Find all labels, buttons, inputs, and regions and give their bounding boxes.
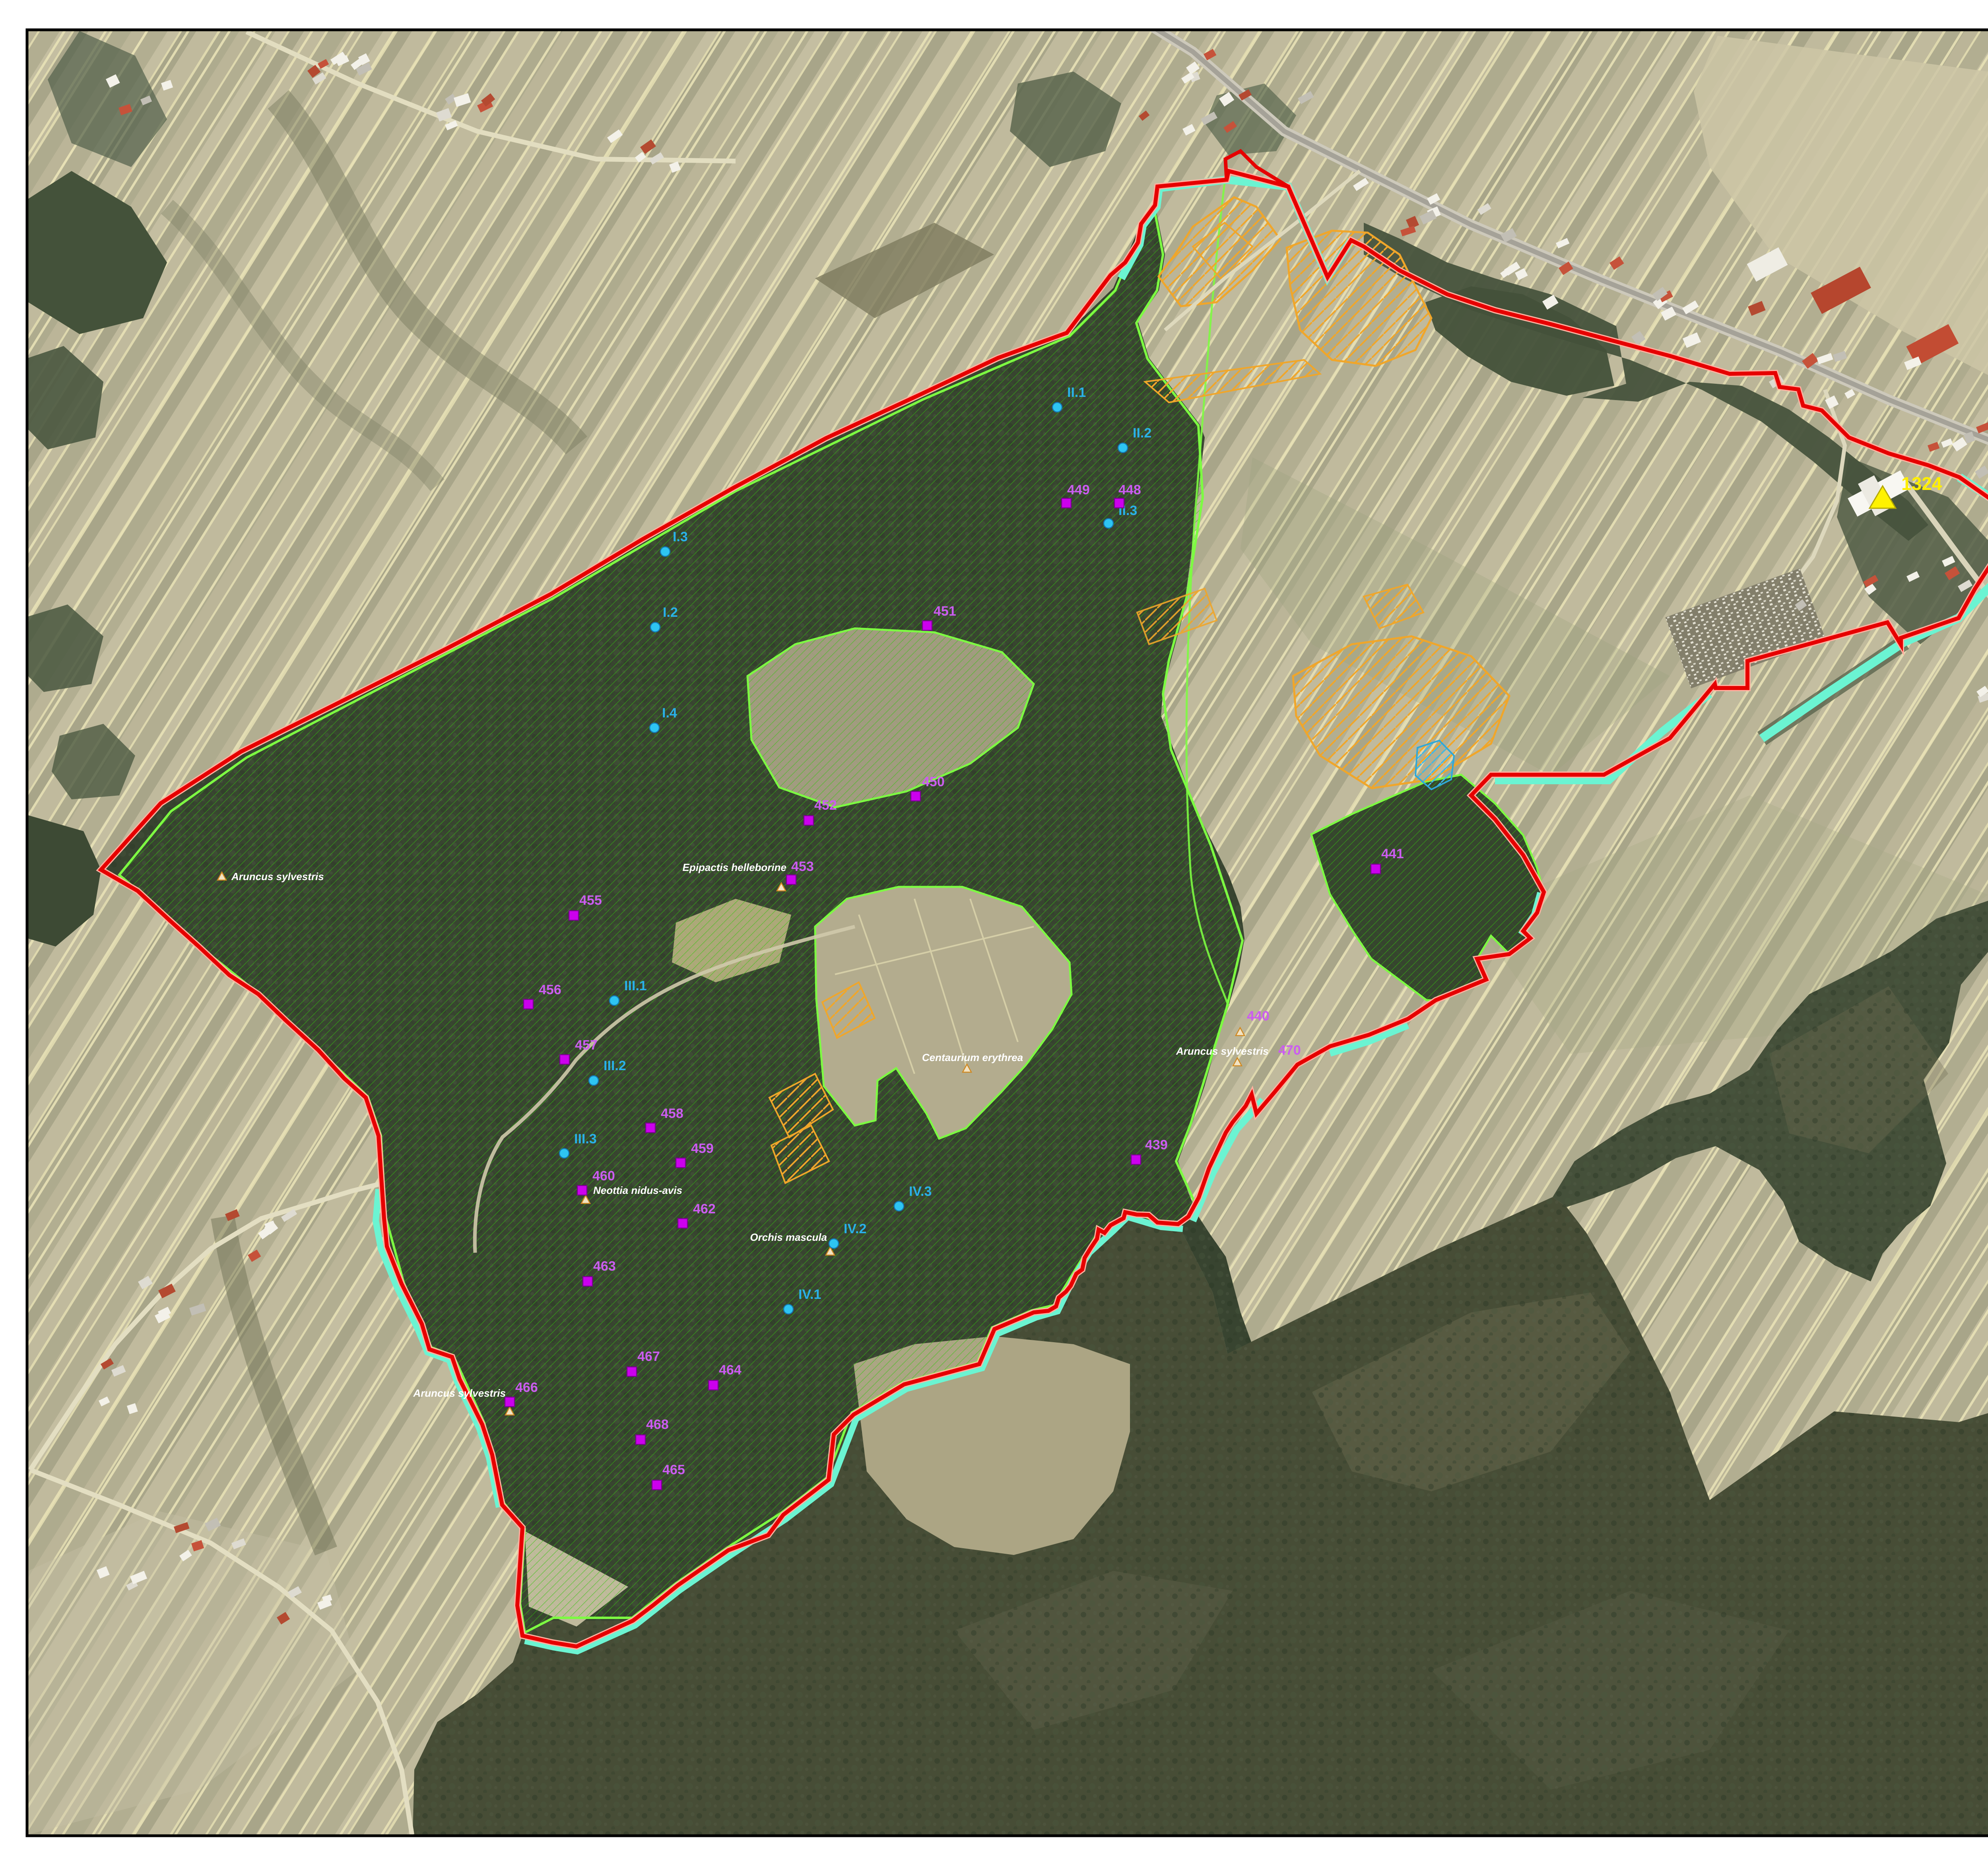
svg-text:439: 439 xyxy=(1145,1137,1168,1153)
svg-text:Centaurium erythrea: Centaurium erythrea xyxy=(922,1051,1023,1063)
svg-text:I.4: I.4 xyxy=(662,706,677,721)
svg-text:449: 449 xyxy=(1067,482,1090,498)
svg-text:IV.2: IV.2 xyxy=(844,1221,866,1236)
svg-text:470: 470 xyxy=(1278,1043,1301,1058)
svg-text:I.2: I.2 xyxy=(663,605,678,620)
svg-text:466: 466 xyxy=(515,1380,538,1395)
svg-text:455: 455 xyxy=(579,893,602,908)
svg-text:464: 464 xyxy=(719,1362,742,1378)
svg-text:III.1: III.1 xyxy=(624,978,647,993)
svg-text:451: 451 xyxy=(934,604,956,619)
svg-text:II.1: II.1 xyxy=(1067,385,1086,400)
svg-text:IV.3: IV.3 xyxy=(909,1184,932,1199)
svg-text:1324: 1324 xyxy=(1901,473,1942,494)
svg-text:468: 468 xyxy=(646,1417,669,1432)
svg-text:450: 450 xyxy=(922,774,945,789)
svg-text:Epipactis helleborine: Epipactis helleborine xyxy=(682,861,786,873)
svg-text:459: 459 xyxy=(691,1141,714,1156)
svg-text:452: 452 xyxy=(814,798,837,813)
svg-text:441: 441 xyxy=(1381,846,1404,861)
svg-text:465: 465 xyxy=(662,1462,685,1477)
svg-text:440: 440 xyxy=(1247,1009,1270,1024)
svg-text:Aruncus sylvestris: Aruncus sylvestris xyxy=(413,1387,506,1399)
svg-text:448: 448 xyxy=(1118,482,1141,498)
svg-text:Aruncus sylvestris: Aruncus sylvestris xyxy=(231,871,324,882)
svg-text:II.2: II.2 xyxy=(1133,426,1151,441)
svg-text:Aruncus sylvestris: Aruncus sylvestris xyxy=(1176,1045,1269,1057)
svg-text:460: 460 xyxy=(592,1168,615,1184)
svg-text:453: 453 xyxy=(791,859,814,874)
svg-text:Orchis mascula: Orchis mascula xyxy=(750,1231,827,1243)
svg-text:Neottia nidus-avis: Neottia nidus-avis xyxy=(593,1184,682,1196)
svg-text:458: 458 xyxy=(661,1106,683,1121)
svg-text:IV.1: IV.1 xyxy=(798,1287,821,1302)
svg-text:462: 462 xyxy=(693,1201,716,1217)
svg-text:456: 456 xyxy=(539,982,561,997)
svg-text:457: 457 xyxy=(575,1038,598,1053)
svg-text:III.3: III.3 xyxy=(574,1131,597,1147)
svg-text:463: 463 xyxy=(593,1259,616,1274)
svg-text:467: 467 xyxy=(637,1349,660,1364)
svg-text:III.2: III.2 xyxy=(604,1058,626,1073)
svg-text:I.3: I.3 xyxy=(673,529,688,544)
